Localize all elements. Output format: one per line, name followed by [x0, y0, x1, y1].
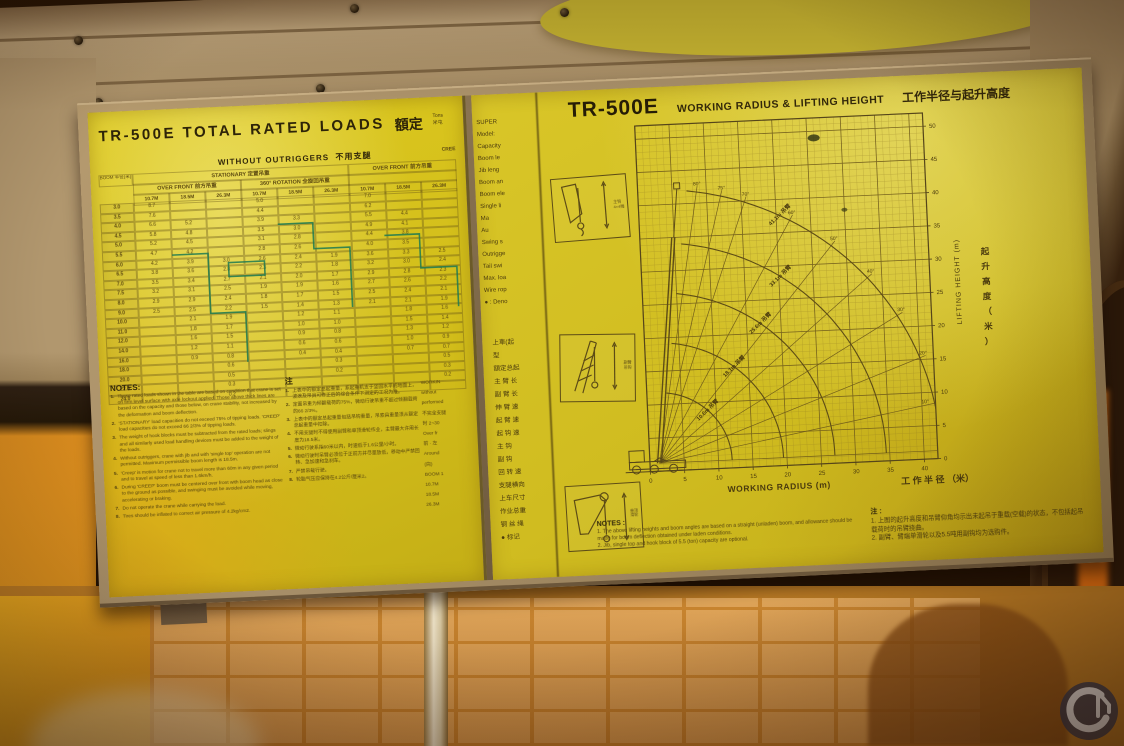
grid-minor: [635, 113, 938, 472]
x-tick-label: 30: [853, 469, 861, 475]
angle-label: 50°: [830, 236, 838, 242]
side-fragment: 前 · 左: [423, 439, 477, 449]
lattice-jib-icon: [560, 335, 633, 402]
note-number: 5.: [288, 447, 293, 453]
angle-label: 75°: [717, 185, 725, 191]
side-fragment: 不完全支腿: [422, 408, 476, 418]
note-number: 4.: [287, 432, 293, 445]
note-text: 轮胎气压应保持在4.2公斤/厘米2。: [296, 474, 369, 484]
note-number: 7.: [115, 506, 120, 512]
angle-label: 40°: [867, 269, 875, 275]
side-fragment: (向): [424, 459, 478, 469]
notes-section: NOTES: 1.These rated loads shown in the …: [110, 368, 472, 526]
y-tick-label: 45: [930, 157, 938, 163]
x-axis-title-en: WORKING RADIUS (m): [727, 479, 831, 494]
note-number: 3.: [112, 436, 118, 455]
angle-label: 70°: [742, 192, 750, 198]
crane-network-logo: [1056, 678, 1122, 744]
screw-icon: [560, 8, 569, 17]
jib-hook-pictogram: 副臂吊钩: [559, 334, 636, 403]
working-radius-chart: 10.6m 吊臂18.1m 吊臂25.6m 吊臂33.1m 吊臂41.1m 吊臂…: [622, 102, 1044, 516]
window-left-wall: [0, 596, 180, 746]
note-number: 8.: [116, 515, 121, 521]
angle-label: 80°: [693, 181, 701, 187]
note-number: 6.: [114, 486, 120, 505]
side-fragment: 26.3M: [426, 500, 480, 510]
x-axis-title-cn: 工 作 半 径 （米）: [901, 472, 974, 486]
note-text: 严禁吊载行驶。: [296, 468, 330, 476]
stain-mark: [841, 208, 847, 212]
y-tick-label: 25: [936, 290, 944, 296]
working-radius-panel: TR-500E WORKING RADIUS & LIFTING HEIGHT …: [471, 68, 1103, 580]
corner-highlight: [30, 690, 260, 746]
rated-loads-panel: TR-500E TOTAL RATED LOADS 額定 Tons 米屯 WIT…: [88, 96, 488, 598]
angle-label: 10°: [921, 399, 929, 405]
x-tick-label: 10: [716, 475, 724, 481]
main-hook-pictogram: 主钩4×4绳: [550, 173, 631, 243]
y-tick-label: 20: [938, 323, 946, 329]
capacity-boundary-lines: [100, 192, 465, 374]
side-fragment: Around: [424, 449, 478, 459]
yellow-cab-part: [538, 0, 1081, 66]
note-number: 4.: [113, 457, 119, 470]
window-silhouette: [868, 604, 1068, 746]
note-number: 8.: [289, 478, 294, 484]
rated-loads-title: TR-500E TOTAL RATED LOADS: [98, 115, 385, 145]
note-number: 5.: [114, 471, 120, 484]
note-number: 6.: [288, 455, 294, 468]
y-tick-label: 0: [944, 456, 948, 462]
x-tick-label: 15: [750, 474, 758, 480]
side-fragment: performed: [421, 398, 475, 408]
crane-cab-photo: TR-500E TOTAL RATED LOADS 額定 Tons 米屯 WIT…: [0, 0, 1124, 746]
note-number: 1.: [285, 389, 291, 402]
side-fragments-column: WORKINwithoutperformed不完全支腿时 2~30Over fr…: [420, 368, 480, 513]
y-tick-label: 50: [929, 124, 937, 130]
side-fragment: 10.7M: [425, 479, 479, 489]
boom-arc: [667, 390, 733, 463]
screw-icon: [350, 4, 359, 13]
stain-mark: [808, 134, 820, 142]
spec-line-cn: ● 标记: [501, 529, 554, 544]
side-fragment: 时 2~30: [422, 418, 476, 428]
brick-wall-reflection: [150, 598, 980, 746]
y-tick-label: 30: [935, 257, 943, 263]
chart-title-cn: 工作半径与起升高度: [902, 84, 1011, 106]
angle-line: [655, 355, 930, 463]
note-number: 1.: [110, 395, 116, 420]
x-tick-label: 25: [819, 471, 827, 477]
y-axis-title-cn: 起升高度（米）: [979, 246, 994, 346]
note-number: 7.: [289, 469, 294, 475]
y-tick-label: 15: [939, 356, 947, 362]
x-tick-label: 20: [784, 472, 792, 478]
x-tick-label: 40: [921, 466, 929, 472]
chart-notes-chinese: 注 : 1. 上图的起升高度和吊臂仰角均示出未起吊于重载(空载)的状态，不包括起…: [870, 498, 1086, 544]
rated-loads-title-row: TR-500E TOTAL RATED LOADS 額定 Tons 米屯: [98, 112, 454, 148]
y-tick-label: 5: [942, 423, 946, 429]
boom-arc-label: 18.1m 吊臂: [721, 353, 747, 379]
angle-label: 20°: [919, 350, 927, 356]
side-fragment: Over fr: [423, 428, 477, 438]
y-axis-title-en: LIFTING HEIGHT (m): [953, 239, 964, 325]
x-tick-label: 0: [649, 479, 653, 485]
screw-icon: [74, 36, 83, 45]
notes-chinese-column: 注 1.上表中的额定总起重量，系起重机支于坚固水平的地面上，波浪及吊具可修正后的…: [285, 370, 423, 518]
x-tick-label: 5: [683, 477, 687, 483]
spec-list-english: SUPERModel:CapacityBoom leJib lengBoom a…: [476, 115, 543, 309]
rated-loads-title-cn: 額定: [394, 114, 423, 135]
window-orange-tint: [150, 598, 980, 746]
metal-strip-reflection: [424, 590, 448, 746]
angle-line: [657, 402, 943, 463]
note-number: 2.: [286, 403, 292, 416]
side-fragment: 18.5M: [426, 490, 480, 500]
angle-line: [660, 450, 948, 463]
angle-label: 30°: [897, 307, 905, 313]
spec-line-en: ● : Deno: [484, 294, 542, 309]
unit-note: Tons 米屯: [432, 113, 443, 126]
cab-window: [0, 586, 1124, 746]
angle-line: [651, 274, 880, 463]
load-chart-placard: TR-500E TOTAL RATED LOADS 額定 Tons 米屯 WIT…: [77, 57, 1114, 608]
note-number: 3.: [286, 418, 292, 431]
notes-english-column: NOTES: 1.These rated loads shown in the …: [110, 376, 287, 526]
y-tick-label: 40: [932, 190, 940, 196]
y-tick-label: 10: [941, 390, 949, 396]
spec-list-chinese: 上車(起型額定总起主 臂 长副 臂 长伸 臂 速起 臂 速起 钩 速主 钩副 钩…: [492, 334, 553, 544]
note-number: 2.: [112, 422, 118, 435]
y-tick-label: 35: [933, 223, 941, 229]
x-tick-label: 35: [887, 468, 895, 474]
angle-label: 60°: [788, 210, 796, 216]
side-fragment: WORKIN: [421, 378, 475, 388]
side-fragment: BOOM 1: [425, 469, 479, 479]
boom-arc: [686, 180, 941, 462]
side-fragment: without: [421, 388, 475, 398]
